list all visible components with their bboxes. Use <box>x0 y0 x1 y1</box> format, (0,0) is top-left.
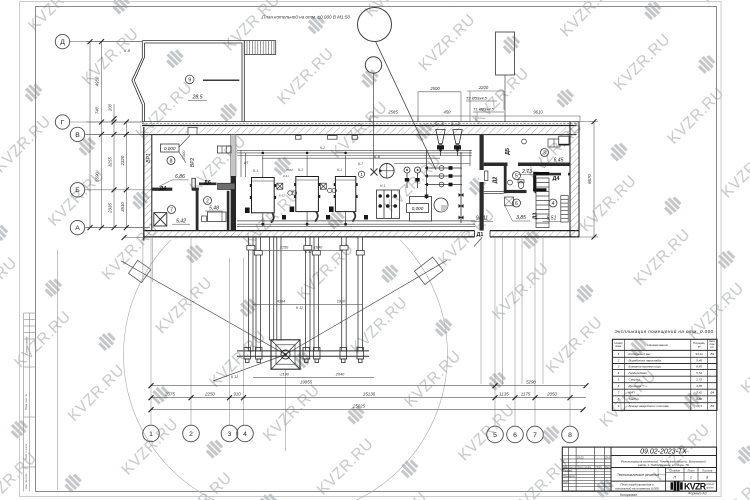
svg-text:План котельной на отм. ±0,000: План котельной на отм. ±0,000 В М1:50 <box>262 14 350 20</box>
svg-text:Т2 Ø59х4,5: Т2 Ø59х4,5 <box>466 96 488 101</box>
svg-text:Наименование: Наименование <box>647 343 668 347</box>
svg-text:19955: 19955 <box>300 379 313 384</box>
svg-text:Подп.: Подп. <box>596 465 603 469</box>
svg-text:К 12: К 12 <box>231 375 238 379</box>
svg-text:740: 740 <box>95 106 100 114</box>
svg-text:Новый: Новый <box>706 482 715 486</box>
svg-text:м²: м² <box>698 345 701 348</box>
svg-text:5,48: 5,48 <box>696 358 702 362</box>
svg-text:25.03: 25.03 <box>604 455 612 459</box>
svg-text:К-2: К-2 <box>320 146 325 150</box>
svg-text:Листов: Листов <box>701 468 713 472</box>
svg-text:6,45: 6,45 <box>554 158 564 164</box>
svg-text:Бункер аварийного топлива: Бункер аварийного топлива <box>629 404 669 408</box>
svg-text:2250: 2250 <box>204 392 215 397</box>
svg-text:3: 3 <box>543 150 546 156</box>
svg-text:28,5: 28,5 <box>695 404 702 408</box>
svg-text:Д1: Д1 <box>477 232 484 238</box>
svg-text:район, с. Поддубровное, ул. Ми: район, с. Поддубровное, ул. Мира, 7Б <box>637 463 689 467</box>
svg-text:К-12: К-12 <box>279 194 285 198</box>
svg-text:7: 7 <box>170 207 173 213</box>
svg-text:8,45: 8,45 <box>696 365 702 369</box>
svg-text:РБМ: РБМ <box>286 168 293 172</box>
svg-text:5,51: 5,51 <box>696 371 702 375</box>
svg-text:6: 6 <box>513 432 517 439</box>
svg-text:2200: 2200 <box>478 85 489 90</box>
svg-text:3,85: 3,85 <box>696 384 702 388</box>
svg-text:3255: 3255 <box>107 157 112 167</box>
svg-text:1640: 1640 <box>314 246 323 250</box>
svg-text:28,5: 28,5 <box>191 95 202 101</box>
svg-text:5,42: 5,42 <box>696 390 702 394</box>
svg-text:8: 8 <box>170 158 173 164</box>
svg-text:Инв. № подл.: Инв. № подл. <box>24 473 28 489</box>
svg-text:Разраб.: Разраб. <box>563 468 573 472</box>
svg-text:Копировал: Копировал <box>620 493 637 497</box>
svg-text:К-1: К-1 <box>253 169 258 173</box>
svg-text:Д6: Д6 <box>204 180 211 186</box>
svg-text:оп.: оп. <box>710 346 714 349</box>
svg-text:Выработка пароснабж.: Выработка пароснабж. <box>629 358 663 362</box>
svg-text:Лист №док.: Лист №док. <box>576 465 592 469</box>
svg-text:KVZR: KVZR <box>684 482 707 492</box>
svg-text:4: 4 <box>243 431 247 438</box>
svg-text:К-11: К-11 <box>283 174 289 178</box>
svg-text:1: 1 <box>690 475 692 479</box>
svg-text:Тамбур: Тамбур <box>629 397 640 401</box>
svg-text:Взам. инв. №: Взам. инв. № <box>24 394 28 410</box>
svg-text:2335: 2335 <box>107 203 112 214</box>
svg-text:2: 2 <box>206 198 209 204</box>
svg-text:450: 450 <box>444 110 452 115</box>
svg-text:КИП: КИП <box>629 390 636 394</box>
svg-text:Д2: Д2 <box>493 177 499 184</box>
svg-text:К-1: К-1 <box>337 168 342 172</box>
svg-text:2: 2 <box>617 358 620 362</box>
svg-text:Санузел: Санузел <box>629 377 641 381</box>
svg-text:Подп. и дата: Подп. и дата <box>24 443 28 460</box>
svg-text:94,11: 94,11 <box>476 216 488 222</box>
svg-text:-2190: -2190 <box>279 373 290 377</box>
svg-text:поме.: поме. <box>615 345 622 348</box>
svg-text:6,86: 6,86 <box>696 397 702 401</box>
svg-text:Площадь,: Площадь, <box>693 341 706 345</box>
svg-text:1135: 1135 <box>499 392 509 397</box>
svg-text:3: 3 <box>228 431 232 438</box>
svg-text:2320: 2320 <box>120 155 125 166</box>
svg-text:5: 5 <box>493 432 497 439</box>
svg-text:3,85: 3,85 <box>516 215 526 221</box>
svg-text:В: В <box>75 132 80 139</box>
svg-text:25.03: 25.03 <box>576 455 584 459</box>
svg-text:А: А <box>75 225 80 232</box>
svg-text:8: 8 <box>568 432 572 439</box>
svg-text:6,86: 6,86 <box>175 174 185 180</box>
svg-text:ВР1: ВР1 <box>146 153 152 163</box>
svg-text:09.02-2023-ТХ: 09.02-2023-ТХ <box>640 449 687 456</box>
svg-text:Душевая: Душевая <box>628 384 642 388</box>
svg-text:5,42: 5,42 <box>176 219 186 225</box>
svg-text:4394: 4394 <box>277 300 285 304</box>
svg-text:9: 9 <box>188 77 191 83</box>
svg-text:Д: Д <box>60 39 65 46</box>
svg-text:проект: проект <box>706 486 715 489</box>
svg-text:котельной на отметку 0,000: котельной на отметку 0,000 <box>615 486 659 490</box>
svg-text:8670: 8670 <box>587 174 592 184</box>
svg-text:Комната приема пищи: Комната приема пищи <box>629 365 662 369</box>
svg-text:1: 1 <box>149 431 153 438</box>
svg-text:Проверил: Проверил <box>563 474 575 478</box>
svg-text:Д5: Д5 <box>505 148 511 155</box>
svg-text:4950: 4950 <box>95 76 100 86</box>
svg-text:Лист: Лист <box>686 468 695 472</box>
svg-text:2040: 2040 <box>335 373 345 377</box>
svg-text:В3: В3 <box>710 404 714 408</box>
svg-text:Н-1: Н-1 <box>380 184 386 188</box>
svg-text:5590: 5590 <box>95 172 100 182</box>
svg-text:Д3: Д3 <box>533 213 539 220</box>
svg-text:Гардеробная: Гардеробная <box>629 371 648 375</box>
svg-text:Согласовано: Согласовано <box>25 336 29 355</box>
svg-text:2300: 2300 <box>181 150 186 161</box>
svg-text:9610: 9610 <box>533 110 543 115</box>
svg-text:5290: 5290 <box>526 379 536 384</box>
svg-text:200: 200 <box>107 103 112 112</box>
svg-text:В4: В4 <box>710 390 714 394</box>
svg-text:К 12: К 12 <box>296 306 303 310</box>
svg-text:8: 8 <box>706 475 708 479</box>
svg-text:6: 6 <box>515 201 518 207</box>
svg-text:1910: 1910 <box>337 300 346 304</box>
svg-text:Экспликация помещений на от: Экспликация помещений на отм. 0.000 <box>615 328 714 334</box>
svg-text:ГИП: ГИП <box>563 480 568 484</box>
svg-text:1175: 1175 <box>521 392 531 397</box>
svg-text:0,000: 0,000 <box>164 146 176 151</box>
svg-text:2050: 2050 <box>546 392 557 397</box>
svg-text:К-7: К-7 <box>358 162 363 166</box>
svg-text:В3: В3 <box>710 352 714 356</box>
svg-text:Дата: Дата <box>604 465 612 469</box>
svg-text:15130: 15130 <box>363 392 376 397</box>
svg-text:2: 2 <box>189 431 193 438</box>
svg-text:94,11: 94,11 <box>696 352 704 356</box>
svg-text:Д4: Д4 <box>553 176 560 182</box>
svg-text:2375: 2375 <box>164 392 175 397</box>
svg-text:5,51: 5,51 <box>547 216 557 222</box>
svg-text:К-1: К-1 <box>298 168 303 172</box>
svg-text:4: 4 <box>552 201 555 207</box>
svg-text:Д4: Д4 <box>160 186 167 192</box>
svg-text:910: 910 <box>233 392 241 397</box>
svg-text:5,48: 5,48 <box>209 205 219 211</box>
svg-text:Технологические решения: Технологические решения <box>617 473 659 477</box>
svg-text:25025: 25025 <box>352 404 366 409</box>
svg-text:Т1 Ø89х4,5: Т1 Ø89х4,5 <box>473 107 495 112</box>
svg-text:Формат А3: Формат А3 <box>688 492 707 496</box>
svg-text:2500: 2500 <box>429 86 440 91</box>
svg-text:7: 7 <box>533 432 537 439</box>
svg-text:Г: Г <box>61 119 65 126</box>
svg-text:ВР2: ВР2 <box>190 158 196 168</box>
svg-text:2585: 2585 <box>387 110 398 115</box>
svg-text:2150: 2150 <box>279 246 289 250</box>
svg-text:5: 5 <box>515 173 518 179</box>
svg-text:Стадия: Стадия <box>669 468 680 472</box>
svg-text:Б: Б <box>75 187 80 194</box>
svg-text:3510: 3510 <box>120 202 125 212</box>
svg-text:К-8: К-8 <box>124 48 131 53</box>
svg-text:Котельный зал: Котельный зал <box>629 352 651 356</box>
svg-text:0,000: 0,000 <box>412 206 424 211</box>
svg-text:2,73: 2,73 <box>521 169 532 175</box>
svg-text:2,73: 2,73 <box>695 377 702 381</box>
